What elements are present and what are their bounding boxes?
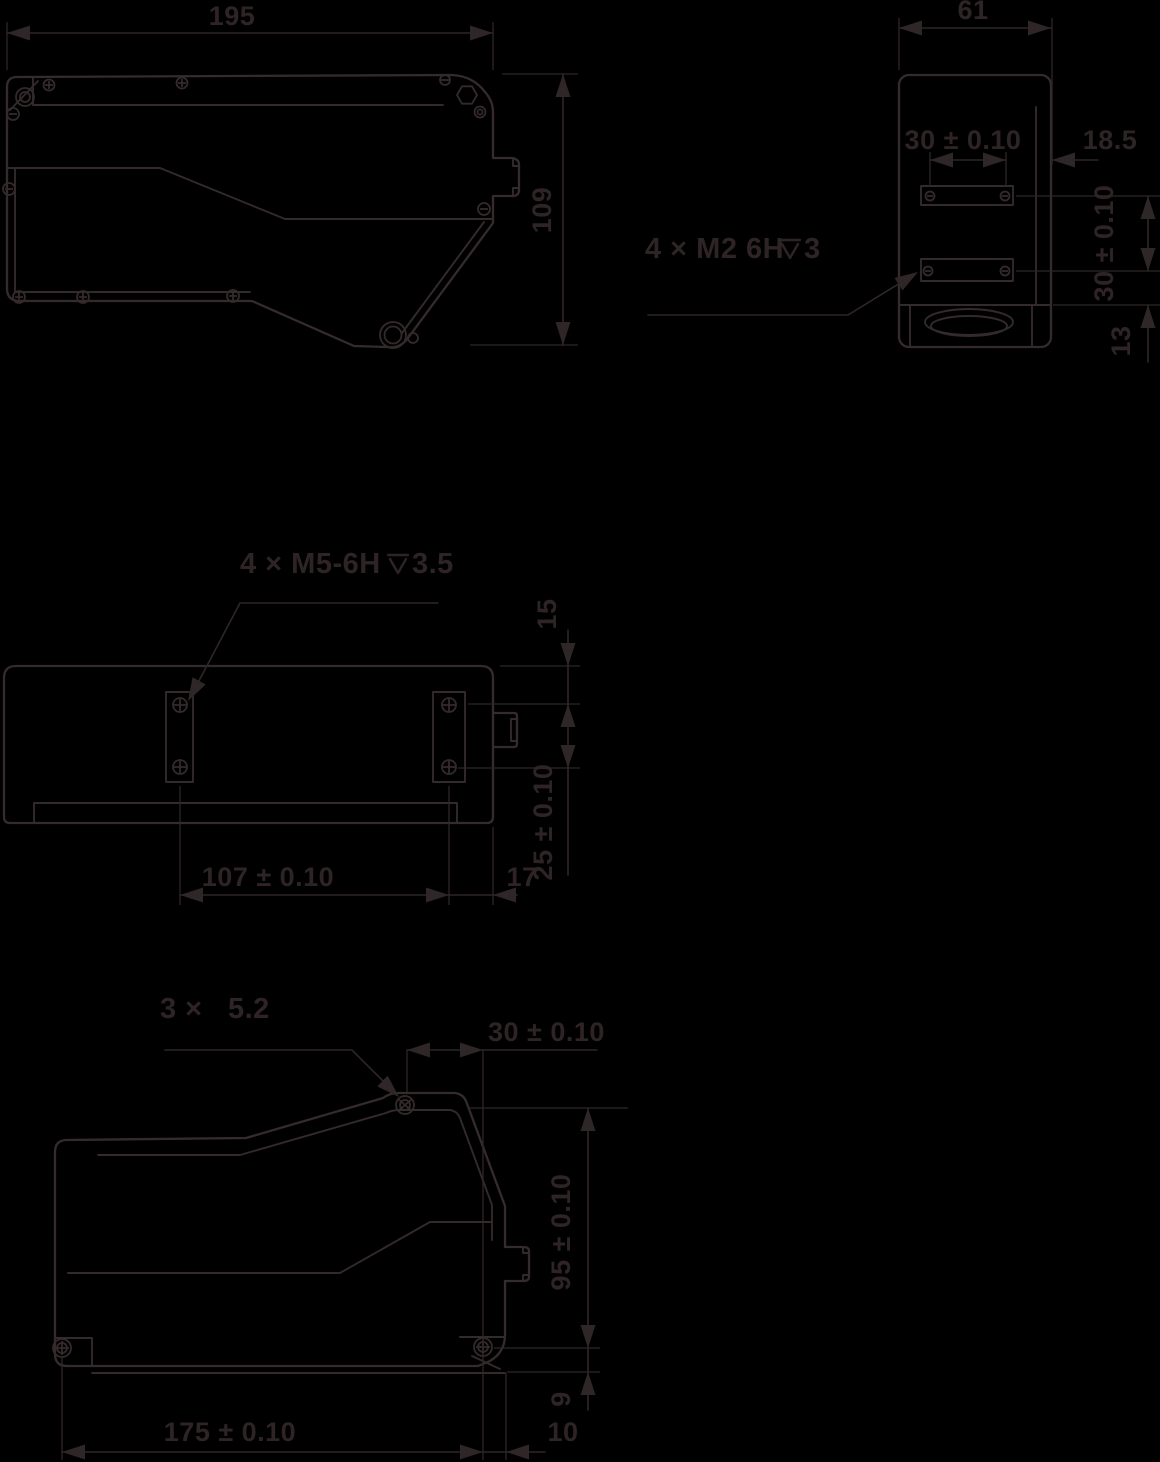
thread-callout-text: 4 × M5-6H [240,548,381,580]
dim-top-offset-label: 15 [532,598,562,629]
dim-base-offset-label: 9 [546,1391,576,1407]
side-view-top: 195 109 [3,1,578,348]
dim-edge-offset: 18.5 [1052,125,1137,168]
dim-height: 95 ± 0.10 9 [470,1108,628,1410]
lid-split-line [68,1222,492,1273]
screw-icons [173,698,456,774]
dim-hole-spacing-v-label: 30 ± 0.10 [1089,185,1119,302]
dim-width-label: 195 [209,1,256,31]
mounting-slot-lower [921,259,1013,281]
thread-callout: 4 × M2 6H 3 [645,233,922,315]
dim-hole-spacing-label: 107 ± 0.10 [202,862,334,892]
top-view: 4 × M5-6H 3.5 15 25 ± 0.10 107 ± 0.10 17 [4,548,580,905]
screw-icons [3,75,490,348]
housing-outline [55,1093,529,1366]
dim-edge-offset-label: 10 [547,1417,578,1447]
dim-top-offset: 15 25 ± 0.10 [458,598,580,880]
dim-hole-spacing-horizontal: 30 ± 0.10 [905,125,1022,186]
dim-edge-offset-label: 17 [506,862,537,892]
dim-width-label: 61 [957,0,988,25]
hole-callout-diameter: 5.2 [228,993,270,1025]
dim-width: 195 [7,1,493,70]
hex-screw-icon [457,86,477,103]
dim-hole-spacing-label: 30 ± 0.10 [905,125,1022,155]
technical-drawing-page: 195 109 61 [0,0,1160,1462]
dim-hole-spacing-vertical: 30 ± 0.10 13 [1016,185,1160,362]
housing-outline [899,75,1051,347]
dim-hole-spacing-label: 175 ± 0.10 [164,1417,296,1447]
dim-top-spacing-label: 30 ± 0.10 [488,1017,605,1047]
lid-split-line [7,168,493,219]
corner-cap-lines [55,1337,505,1369]
hole-callout-text: 3 × [160,993,203,1025]
dim-lens-offset-label: 13 [1106,325,1136,356]
hole-callout: 3 × 5.2 [160,993,404,1102]
top-rail-line [33,77,443,105]
base-step-line [34,803,457,823]
leader-line [648,275,913,315]
depth-symbol-icon [388,555,408,573]
dim-height-label: 109 [527,187,557,234]
housing-outline [4,666,493,823]
end-view: 61 30 ± 0.10 18.5 30 ± 0.10 13 4 [645,0,1160,362]
thread-callout: 4 × M5-6H 3.5 [181,548,453,705]
side-view-bottom: 3 × 5.2 30 ± 0.10 95 ± 0.10 9 [53,993,628,1460]
leader-line [165,1050,395,1093]
inner-offset-line [98,1110,492,1240]
thread-callout-depth: 3.5 [412,548,454,580]
dim-edge-offset-label: 18.5 [1083,125,1138,155]
leader-line [191,603,438,696]
thread-callout-depth: 3 [804,233,821,265]
housing-outline [7,75,519,347]
slant-inner-line [402,222,484,333]
thread-callout-text: 4 × M2 6H [645,233,784,265]
sensor-dimension-drawing: 195 109 61 [0,0,1160,1462]
screw-icons [53,1096,492,1357]
dim-height-label: 95 ± 0.10 [546,1174,576,1291]
